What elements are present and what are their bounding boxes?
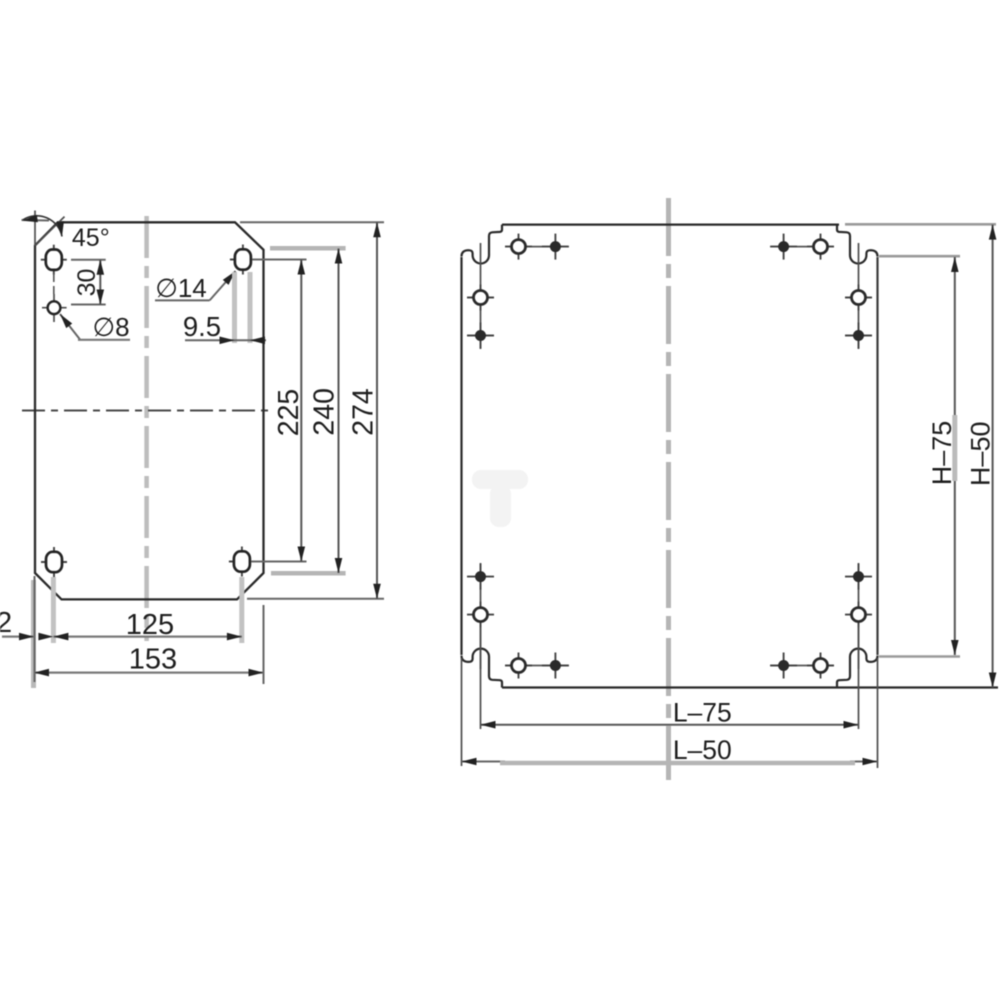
svg-text:45°: 45°: [72, 224, 110, 252]
svg-text:L–75: L–75: [673, 698, 732, 728]
svg-text:30: 30: [73, 269, 101, 297]
svg-text:H–50: H–50: [966, 422, 996, 487]
svg-text:153: 153: [129, 644, 177, 676]
svg-text:L–50: L–50: [673, 735, 732, 765]
svg-text:9.5: 9.5: [183, 311, 221, 342]
svg-text:H–75: H–75: [927, 421, 957, 486]
svg-text:∅8: ∅8: [92, 312, 129, 342]
svg-text:225: 225: [273, 389, 305, 437]
svg-text:274: 274: [347, 388, 379, 436]
svg-text:∅14: ∅14: [155, 273, 207, 303]
svg-text:240: 240: [309, 388, 341, 436]
svg-text:2: 2: [0, 607, 12, 639]
svg-text:125: 125: [126, 609, 174, 641]
